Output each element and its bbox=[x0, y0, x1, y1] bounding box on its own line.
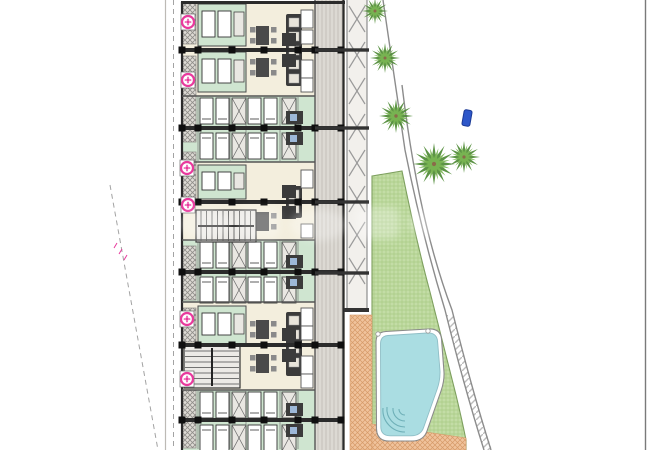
entrance-marker bbox=[181, 14, 195, 30]
site-plan-drawing bbox=[0, 0, 650, 450]
entrance-marker bbox=[181, 197, 195, 213]
site-plan-canvas: Site plan: residential block of repeatin… bbox=[0, 0, 650, 450]
entrance-marker bbox=[180, 160, 194, 176]
entrance-marker bbox=[180, 371, 194, 387]
building-top-wall bbox=[181, 1, 345, 4]
entrance-marker bbox=[180, 311, 194, 327]
pool-corner-dot bbox=[426, 329, 430, 333]
pool-corner-dot bbox=[376, 332, 380, 336]
entrance-marker bbox=[181, 72, 195, 88]
